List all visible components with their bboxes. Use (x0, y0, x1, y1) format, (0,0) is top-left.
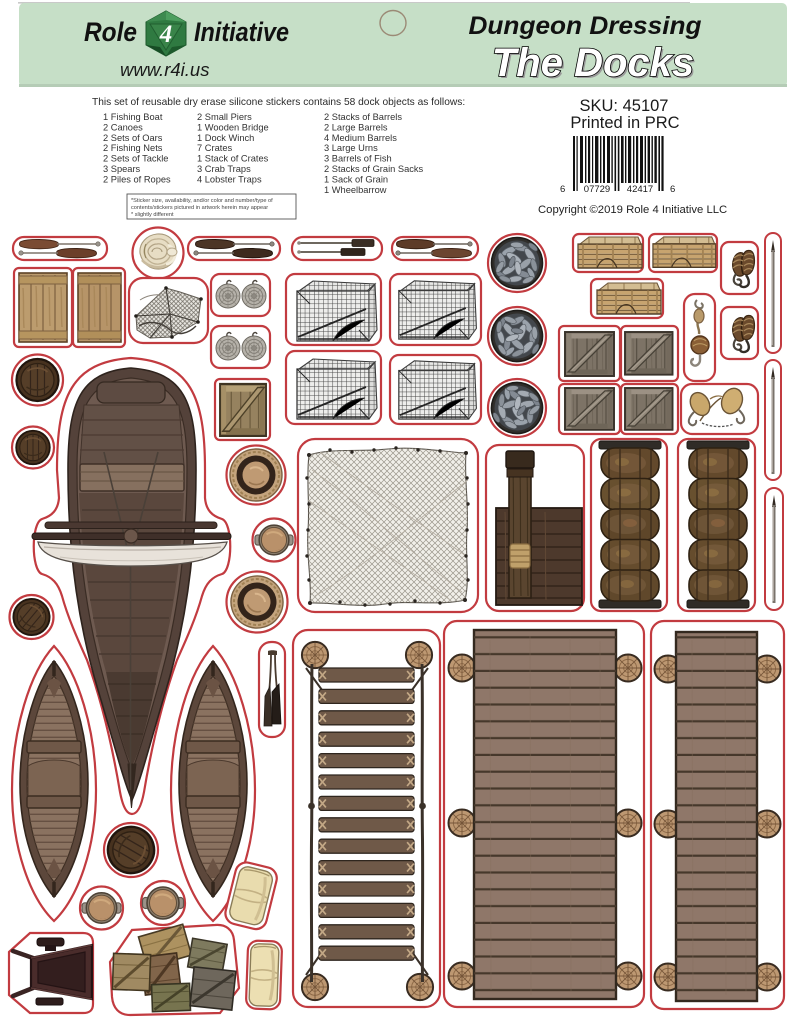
svg-text:This set of reusable dry erase: This set of reusable dry erase silicone … (92, 97, 465, 108)
svg-text:The Docks: The Docks (492, 41, 694, 85)
svg-text:Role: Role (84, 17, 137, 47)
svg-text:SKU: 45107: SKU: 45107 (580, 97, 669, 115)
svg-text:1 Wooden Bridge: 1 Wooden Bridge (197, 122, 269, 132)
svg-text:4 Lobster Traps: 4 Lobster Traps (197, 174, 262, 184)
svg-text:1 Wheelbarrow: 1 Wheelbarrow (324, 185, 387, 195)
svg-text:6: 6 (670, 184, 675, 195)
svg-text:Printed in PRC: Printed in PRC (570, 114, 679, 132)
svg-text:2 Small Piers: 2 Small Piers (197, 112, 252, 122)
svg-text:3 Spears: 3 Spears (103, 164, 141, 174)
svg-text:Initiative: Initiative (194, 17, 289, 47)
svg-text:2 Stacks of Barrels: 2 Stacks of Barrels (324, 112, 402, 122)
svg-text:2 Sets of Oars: 2 Sets of Oars (103, 133, 163, 143)
svg-text:* slightly different: * slightly different (131, 212, 174, 218)
svg-text:1 Fishing Boat: 1 Fishing Boat (103, 112, 163, 122)
svg-text:1 Dock Winch: 1 Dock Winch (197, 133, 254, 143)
svg-text:3 Barrels of Fish: 3 Barrels of Fish (324, 154, 392, 164)
svg-text:1 Stack of Crates: 1 Stack of Crates (197, 154, 269, 164)
svg-text:6: 6 (560, 184, 565, 195)
svg-text:07729: 07729 (584, 184, 610, 195)
svg-text:contents/stickers pictured in: contents/stickers pictured in artwork he… (131, 205, 268, 211)
svg-text:*Sticker size, availability, a: *Sticker size, availability, and/or colo… (131, 198, 273, 204)
svg-text:2 Canoes: 2 Canoes (103, 122, 143, 132)
svg-text:1 Sack of Grain: 1 Sack of Grain (324, 174, 388, 184)
svg-text:2 Fishing Nets: 2 Fishing Nets (103, 143, 163, 153)
svg-text:2 Piles of Ropes: 2 Piles of Ropes (103, 174, 171, 184)
svg-text:3 Large Urns: 3 Large Urns (324, 143, 378, 153)
svg-text:www.r4i.us: www.r4i.us (120, 59, 209, 80)
svg-text:4: 4 (159, 21, 173, 48)
svg-text:Copyright ©2019 Role 4 Init: Copyright ©2019 Role 4 Initiative LLC (538, 204, 727, 216)
svg-text:7 Crates: 7 Crates (197, 143, 232, 153)
svg-text:2 Large Barrels: 2 Large Barrels (324, 122, 388, 132)
svg-text:42417: 42417 (627, 184, 653, 195)
svg-text:Dungeon Dressing: Dungeon Dressing (469, 12, 702, 40)
svg-text:2 Stacks of Grain Sacks: 2 Stacks of Grain Sacks (324, 164, 424, 174)
svg-text:4 Medium Barrels: 4 Medium Barrels (324, 133, 397, 143)
svg-text:3 Crab Traps: 3 Crab Traps (197, 164, 251, 174)
svg-text:2 Sets of Tackle: 2 Sets of Tackle (103, 154, 168, 164)
